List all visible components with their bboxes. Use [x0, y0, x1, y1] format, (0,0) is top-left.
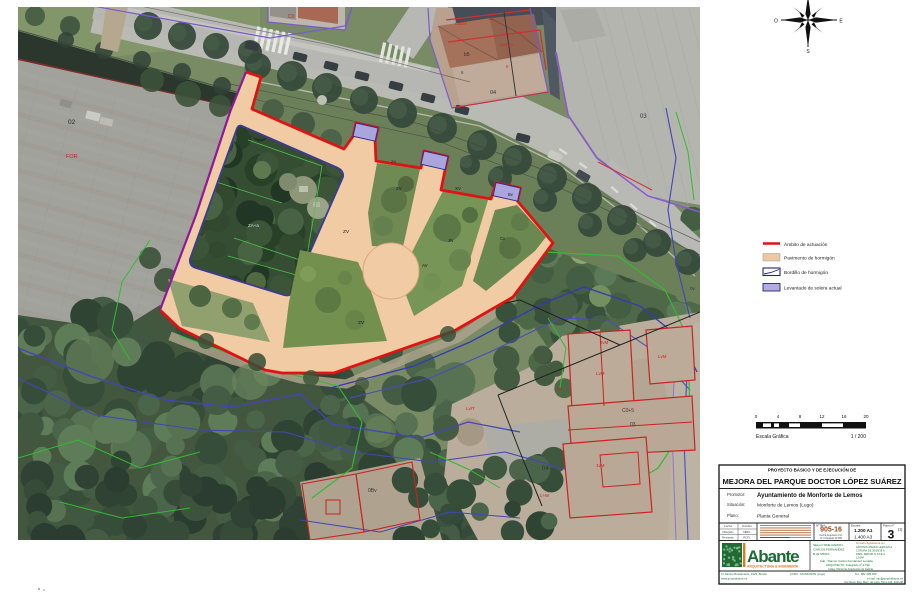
- svg-text:SELLO SIDE RAMON: SELLO SIDE RAMON: [813, 543, 843, 547]
- svg-text:1 / 200: 1 / 200: [851, 434, 867, 440]
- svg-text:1vM: 1vM: [596, 463, 605, 468]
- svg-text:ZV: ZV: [358, 320, 365, 326]
- svg-text:ARQUITECTURA & INGENIERÍA: ARQUITECTURA & INGENIERÍA: [747, 564, 799, 569]
- svg-text:Escala:: Escala:: [851, 524, 861, 528]
- svg-text:ARQUITECTO. Colegiado nº 2.799: ARQUITECTO. Colegiado nº 2.799: [826, 563, 870, 567]
- svg-text:Dibujado: Dibujado: [722, 530, 733, 534]
- svg-text:ZV: ZV: [343, 229, 350, 235]
- svg-text:CARLOS FERNANDEZ: CARLOS FERNANDEZ: [813, 548, 845, 552]
- svg-text:e-mail: info@grupoabante.es: e-mail: info@grupoabante.es: [867, 577, 904, 581]
- svg-text:Escala Gráfica: Escala Gráfica: [756, 434, 789, 440]
- svg-text:RCFL: RCFL: [743, 536, 751, 540]
- svg-text:Inscrita en Reg. Merc. de Lugo: Inscrita en Reg. Merc. de Lugo, Tomo 414…: [844, 580, 903, 584]
- svg-text:C0: C0: [288, 14, 295, 20]
- svg-text:Fecha: Fecha: [724, 524, 732, 528]
- svg-text:LvM: LvM: [596, 371, 605, 376]
- svg-text:Octubre: Octubre: [742, 524, 752, 528]
- svg-text:Nº Colegiado 99.999: Nº Colegiado 99.999: [820, 536, 843, 540]
- svg-text:Ayuntamiento de Monforte de Le: Ayuntamiento de Monforte de Lemos: [757, 493, 863, 499]
- svg-text:20: 20: [863, 414, 869, 419]
- svg-text:XV: XV: [455, 186, 461, 191]
- svg-text:16: 16: [841, 414, 847, 419]
- svg-text:1.400 A3: 1.400 A3: [854, 535, 873, 540]
- svg-text:FIRM. REPUB. S.T.P.E.C.: FIRM. REPUB. S.T.P.E.C.: [856, 552, 886, 556]
- svg-text:O: O: [774, 18, 778, 24]
- svg-text:Tel.: 982 405 060: Tel.: 982 405 060: [855, 572, 877, 576]
- svg-text:Cv: Cv: [500, 236, 506, 241]
- svg-text:905-16: 905-16: [820, 527, 842, 534]
- svg-text:C0+5: C0+5: [622, 408, 634, 414]
- svg-text:MRFL: MRFL: [743, 530, 751, 534]
- svg-text:www.grupoabante.es: www.grupoabante.es: [721, 577, 748, 581]
- svg-text:Levantado de solera actual: Levantado de solera actual: [784, 286, 842, 292]
- svg-text:LvIT: LvIT: [466, 406, 475, 411]
- svg-text:04: 04: [542, 466, 549, 472]
- svg-text:MEJORA DEL PARQUE DOCTOR LÓPEZ: MEJORA DEL PARQUE DOCTOR LÓPEZ SUÁREZ: [722, 477, 901, 486]
- svg-text:LvM: LvM: [658, 354, 667, 359]
- svg-text:27400 - MONFORTE (Lugo): 27400 - MONFORTE (Lugo): [790, 572, 825, 576]
- svg-text:Planta General: Planta General: [757, 514, 789, 520]
- svg-text:b5: b5: [464, 52, 470, 58]
- svg-text:04: 04: [490, 90, 496, 96]
- svg-text:L+M: L+M: [540, 493, 549, 498]
- svg-text:Abante: Abante: [747, 547, 799, 566]
- svg-text:II: II: [506, 64, 509, 69]
- svg-text:FOR: FOR: [66, 154, 78, 160]
- svg-text:C/ Ramiro Bustamante, 1923, Bu: C/ Ramiro Bustamante, 1923, Burela: [721, 572, 767, 576]
- svg-text:0v: 0v: [690, 286, 696, 291]
- svg-text:JvM: JvM: [600, 340, 609, 345]
- svg-text:0Bv: 0Bv: [368, 488, 377, 494]
- svg-text:AV: AV: [422, 263, 428, 268]
- svg-text:II: II: [461, 70, 464, 75]
- svg-text:Plano:: Plano:: [727, 513, 739, 518]
- svg-text:03: 03: [630, 422, 636, 428]
- svg-text:(1): (1): [898, 528, 902, 532]
- svg-text:03: 03: [640, 114, 647, 120]
- svg-text:Coleg. Oficial de Arquitectos: Coleg. Oficial de Arquitectos de Galicia: [828, 567, 873, 571]
- svg-text:I: I: [280, 508, 281, 513]
- svg-text:Bordillo de hormigón: Bordillo de hormigón: [784, 270, 828, 276]
- svg-text:ZA+a: ZA+a: [248, 223, 259, 228]
- svg-text:ZV: ZV: [391, 159, 396, 164]
- svg-text:1H: 1H: [488, 16, 494, 21]
- svg-text:3: 3: [888, 528, 895, 542]
- svg-text:Ámbito de actuación: Ámbito de actuación: [784, 241, 828, 248]
- svg-text:1H: 1H: [556, 386, 562, 391]
- svg-text:LuTZA: LuTZA: [500, 42, 514, 47]
- svg-text:02: 02: [68, 119, 76, 126]
- svg-text:12: 12: [819, 414, 825, 419]
- svg-text:1.200 A1: 1.200 A1: [854, 528, 873, 533]
- svg-text:PROYECTO BÁSICO Y DE EJECUCIÓN: PROYECTO BÁSICO Y DE EJECUCIÓN DE: [768, 468, 856, 473]
- svg-text:ANTONIO AMADO LEMA EN A: ANTONIO AMADO LEMA EN A: [856, 545, 892, 549]
- svg-text:Situación:: Situación:: [727, 502, 745, 507]
- svg-text:ZV: ZV: [396, 186, 402, 191]
- svg-text:Monforte de Lemos (Lugo): Monforte de Lemos (Lugo): [757, 503, 814, 509]
- svg-text:Revisado: Revisado: [722, 536, 734, 540]
- svg-text:B-32725610: B-32725610: [813, 552, 830, 556]
- svg-text:Firmado digitalmente por: Firmado digitalmente por: [856, 541, 885, 545]
- svg-text:Promotor:: Promotor:: [727, 492, 745, 497]
- svg-text:LuIZA: LuIZA: [455, 21, 467, 26]
- svg-text:Pavimento de hormigón: Pavimento de hormigón: [784, 256, 835, 262]
- svg-text:JN: JN: [448, 238, 453, 243]
